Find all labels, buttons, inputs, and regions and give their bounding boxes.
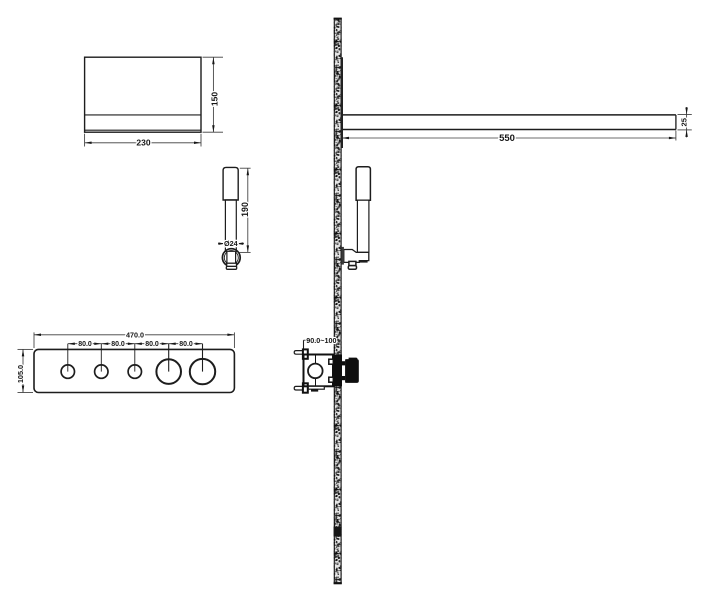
svg-text:150: 150 <box>210 92 220 106</box>
svg-text:470.0: 470.0 <box>126 330 144 339</box>
svg-text:230: 230 <box>136 138 150 148</box>
svg-text:Ø24: Ø24 <box>224 239 238 248</box>
svg-text:80.0: 80.0 <box>111 341 125 348</box>
svg-text:105.0: 105.0 <box>16 365 25 383</box>
svg-text:90.0~100: 90.0~100 <box>306 336 336 345</box>
svg-text:80.0: 80.0 <box>145 341 159 348</box>
svg-text:80.0: 80.0 <box>179 341 193 348</box>
svg-text:190: 190 <box>240 202 250 217</box>
svg-text:25: 25 <box>680 117 689 126</box>
svg-text:550: 550 <box>499 133 515 144</box>
svg-text:80.0: 80.0 <box>78 341 92 348</box>
